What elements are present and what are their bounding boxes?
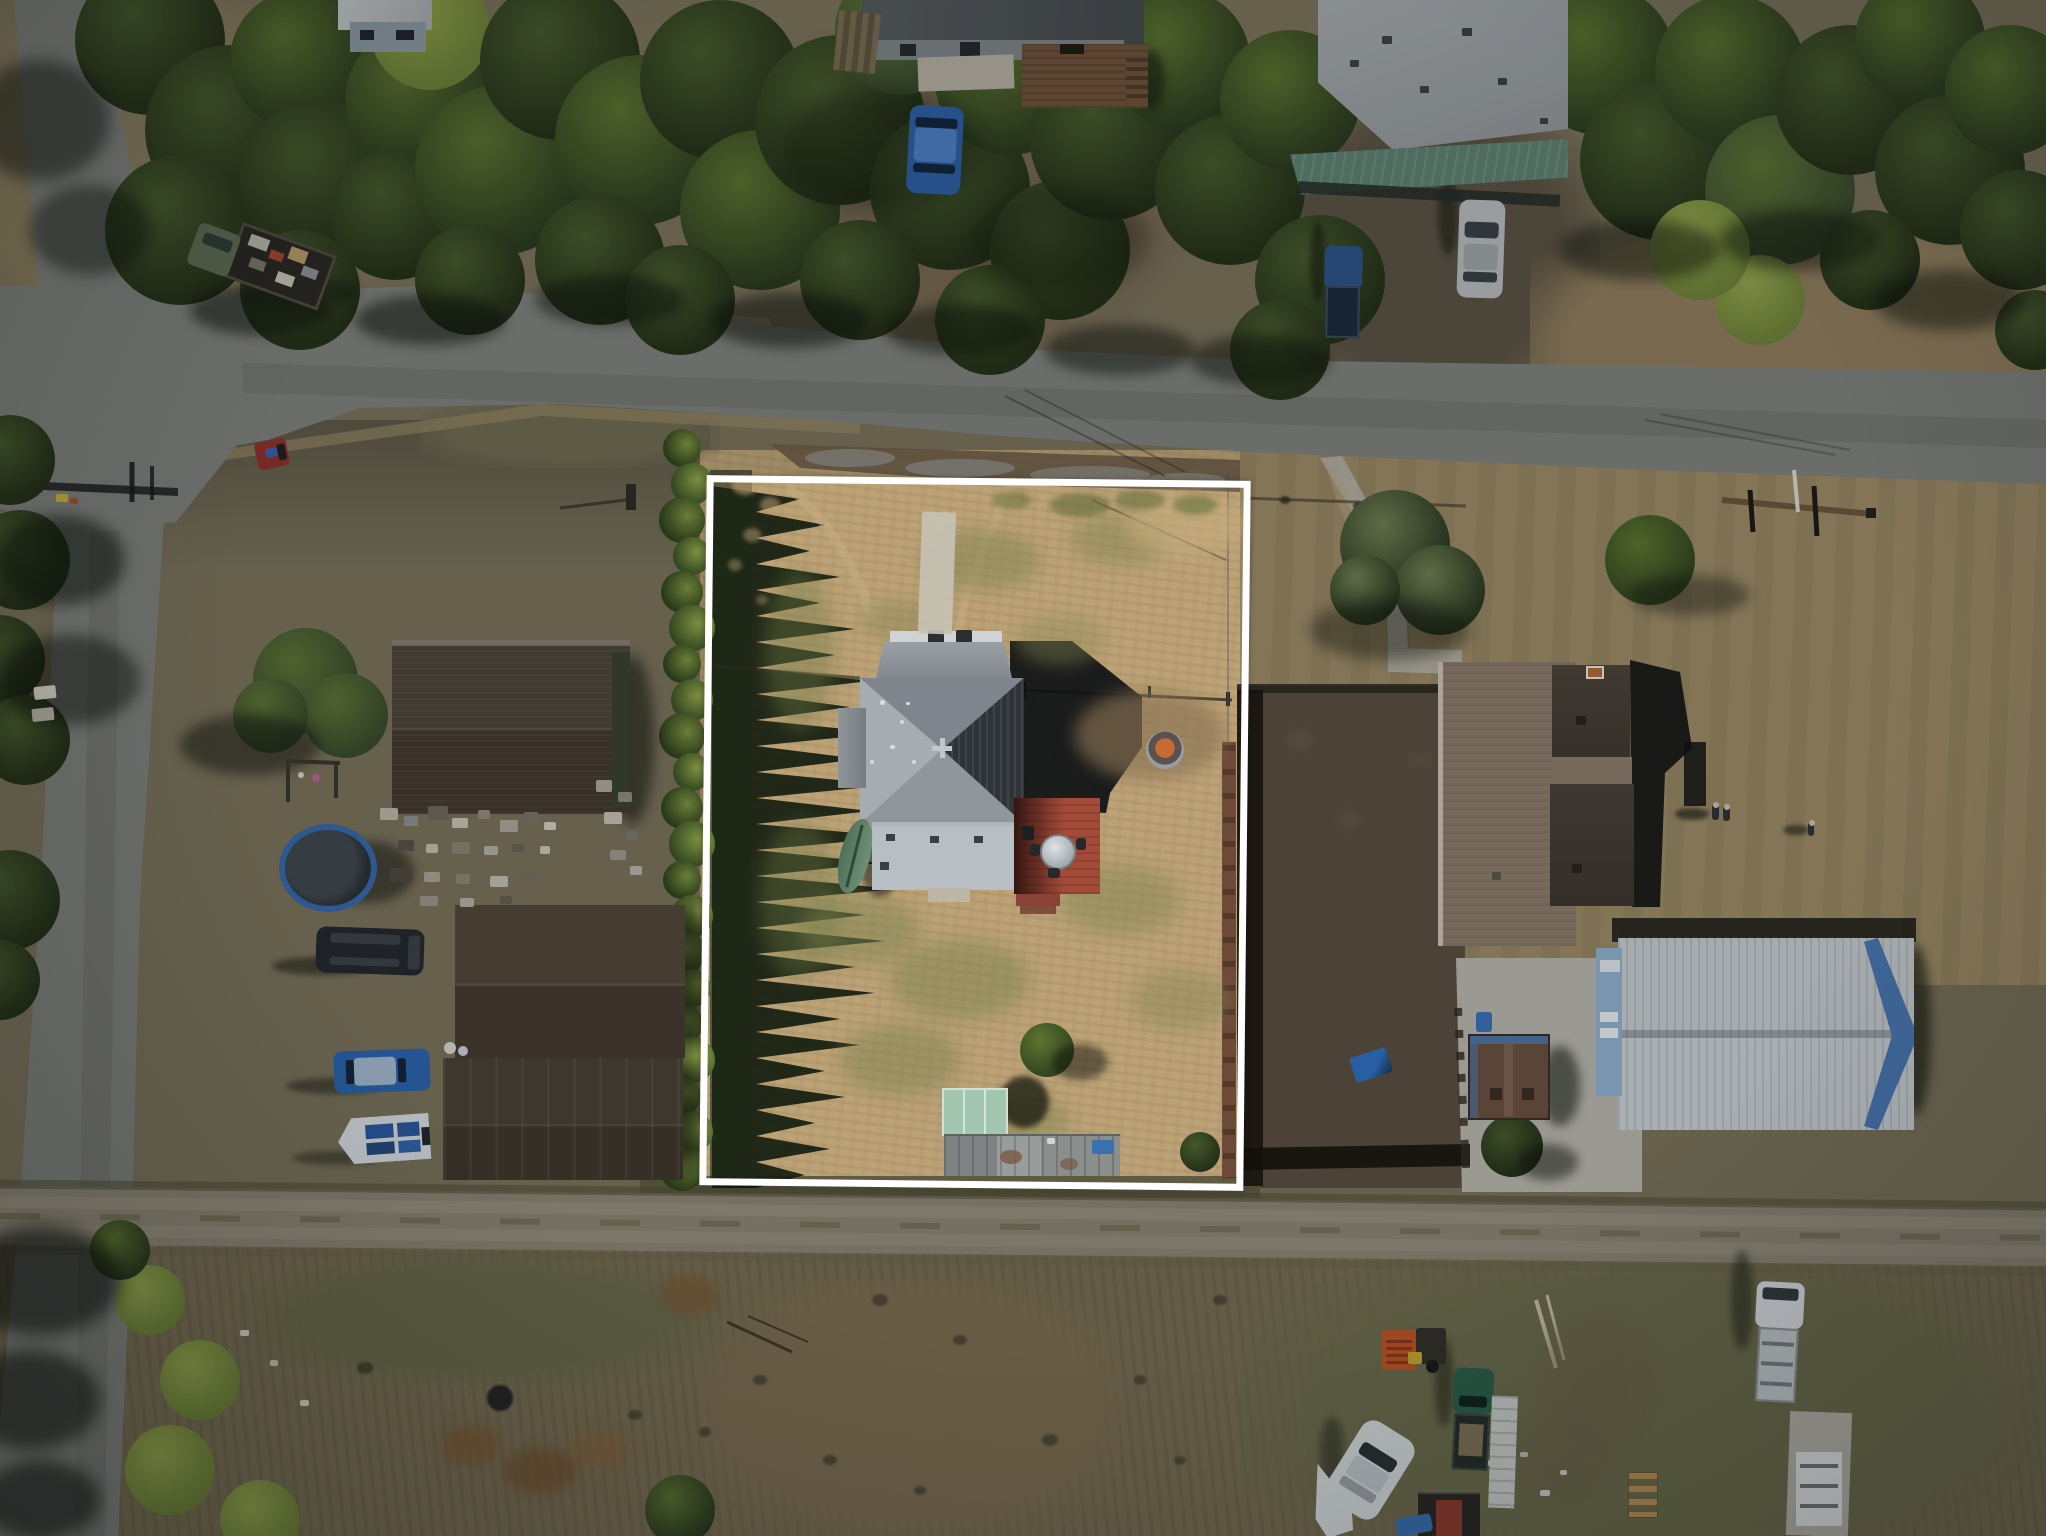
- shadow-blob: [1518, 1144, 1578, 1180]
- person: [1809, 820, 1815, 826]
- pickup-windshield: [1762, 1287, 1799, 1301]
- debris-item: [398, 840, 414, 851]
- hedge-bush: [659, 497, 705, 543]
- hedge-bush: [663, 645, 701, 683]
- debris-yellow: [1408, 1352, 1422, 1364]
- silver-car: [1456, 199, 1505, 299]
- barn-roof: [1618, 938, 1914, 1130]
- shadow-blob: [1190, 335, 1330, 385]
- left-garage-roof: [455, 905, 685, 1058]
- roof-vent: [1492, 872, 1501, 880]
- left-house-eave: [392, 640, 630, 646]
- debris-item: [500, 820, 518, 832]
- shadow-blob: [30, 185, 150, 275]
- shadow-blob: [1783, 825, 1809, 835]
- debris-item: [1540, 118, 1548, 124]
- debris-item: [298, 772, 304, 778]
- barn-window: [1600, 1012, 1618, 1022]
- shadow-blob: [1310, 600, 1470, 660]
- debris-item: [478, 810, 490, 819]
- debris-item: [286, 764, 290, 802]
- shadow-blob: [970, 190, 1150, 290]
- shadow-blob: [1045, 325, 1195, 375]
- left-house-roof: [392, 644, 630, 814]
- car-roof: [354, 1057, 397, 1086]
- shed-blue-tarp: [1470, 1036, 1548, 1044]
- trailer-seam: [1800, 1464, 1838, 1468]
- debris-item: [1520, 1452, 1528, 1457]
- topedge-house-window: [360, 30, 374, 40]
- shed-blue-tarp: [1470, 1036, 1478, 1118]
- ground-patch: [487, 1385, 513, 1411]
- shadow-blob: [0, 635, 140, 725]
- debris-item: [610, 850, 626, 860]
- shed-window: [1490, 1088, 1502, 1100]
- concrete-pad: [917, 54, 1014, 91]
- debris-item: [460, 898, 474, 907]
- debris-item: [500, 896, 512, 904]
- ground-patch: [1280, 496, 1290, 504]
- debris-item: [270, 1360, 278, 1366]
- shadow-blob: [180, 715, 320, 775]
- barn-white-trim: [1600, 960, 1620, 972]
- trailer-seam: [1800, 1484, 1838, 1488]
- debris-item: [1560, 1470, 1567, 1475]
- pole-base: [1866, 508, 1876, 518]
- ground-patch: [1510, 1415, 1610, 1505]
- boat-interior: [397, 1122, 420, 1138]
- pickup-cargo: [1458, 1423, 1484, 1456]
- trampoline: [279, 824, 377, 912]
- debris-item: [312, 774, 320, 782]
- ground-patch: [1408, 752, 1432, 768]
- boat-interior: [365, 1123, 394, 1139]
- debris-item: [596, 780, 612, 792]
- debris-item: [404, 816, 418, 826]
- shed-ridge: [1504, 1038, 1513, 1116]
- debris-item: [452, 818, 468, 828]
- ground-patch: [628, 1410, 642, 1420]
- debris-item: [452, 842, 470, 854]
- tree-canopy: [125, 1425, 215, 1515]
- shadow-blob: [535, 275, 685, 325]
- deck-stairs: [1126, 58, 1148, 102]
- debris-item: [334, 762, 338, 798]
- shadow-blob: [355, 295, 505, 345]
- ground-patch: [1337, 811, 1363, 829]
- ground-patch: [1285, 730, 1315, 750]
- hedge-bush: [659, 713, 705, 759]
- shadow-blob: [1560, 220, 1720, 280]
- car-rear-window: [398, 1058, 407, 1082]
- pickup-bed: [1325, 286, 1360, 339]
- pole-shadow: [1750, 490, 1753, 532]
- topedge-house-window: [396, 30, 414, 40]
- ground-patch: [1042, 1434, 1058, 1446]
- ground-patch: [1174, 1456, 1186, 1465]
- person: [1724, 804, 1730, 810]
- debris-item: [380, 808, 398, 820]
- debris-item: [626, 830, 638, 840]
- ground-patch: [440, 1425, 500, 1465]
- debris-item: [540, 846, 550, 854]
- debris-item: [1382, 36, 1392, 44]
- right-house-tan-gap: [1552, 757, 1632, 784]
- white-panel-trailer: [1488, 1396, 1518, 1509]
- hedge-bush: [663, 861, 701, 899]
- wood-pallet: [1628, 1472, 1658, 1518]
- left-garage2-roof: [443, 1058, 683, 1180]
- trailer-seam: [1800, 1504, 1838, 1508]
- pickup-cab: [1324, 246, 1363, 289]
- debris-item: [70, 498, 78, 504]
- pole-shadow: [1814, 486, 1817, 536]
- fence-line: [1237, 684, 1462, 693]
- right-house-dark-roof-b: [1550, 784, 1634, 906]
- debris-item: [524, 872, 536, 881]
- white-trailer: [1796, 1452, 1842, 1526]
- blue-pickup: [1323, 246, 1363, 339]
- debris-item: [240, 1330, 249, 1336]
- pickup-cab: [1452, 1367, 1494, 1415]
- debris-item: [1462, 28, 1472, 36]
- ground-patch: [570, 1430, 630, 1470]
- shadow-blob: [0, 515, 125, 605]
- debris-item: [630, 866, 642, 875]
- debris-item: [428, 806, 448, 820]
- chimney: [1586, 666, 1604, 679]
- shadow-blob: [1875, 270, 2025, 330]
- shadow-blob: [1731, 1250, 1753, 1350]
- ground-patch: [953, 1335, 967, 1345]
- orange-tractor-debris: [1382, 1326, 1452, 1374]
- blue-car-left: [333, 1048, 430, 1093]
- car-windshield: [1464, 221, 1499, 238]
- top-house-doorway: [1060, 44, 1084, 54]
- tree-canopy: [645, 1475, 715, 1536]
- car-roof: [913, 127, 957, 163]
- debris-item: [300, 1400, 309, 1406]
- shadow-blob: [885, 305, 1035, 355]
- stick: [748, 1316, 808, 1342]
- stick: [727, 1322, 792, 1352]
- boat-interior: [398, 1139, 421, 1153]
- roof-vent: [1576, 716, 1586, 725]
- debris-item: [1498, 78, 1507, 85]
- debris-item: [484, 846, 498, 855]
- roof-vent: [1572, 864, 1582, 873]
- debris-item: [544, 822, 556, 830]
- puddle: [805, 449, 895, 467]
- debris-item: [424, 872, 440, 882]
- ground-patch: [660, 1275, 720, 1315]
- debris-item: [512, 844, 524, 852]
- top-house-window: [900, 44, 916, 56]
- ground-patch: [872, 1294, 888, 1306]
- boat-on-trailer: [336, 1111, 431, 1167]
- ground-patch: [1134, 1375, 1146, 1385]
- utility-pole: [626, 484, 636, 510]
- property-boundary-outline: [699, 475, 1250, 1191]
- boat-motor: [421, 1127, 430, 1146]
- debris-item: [1420, 86, 1429, 93]
- puddle: [905, 459, 1015, 477]
- debris-item: [1540, 1490, 1550, 1496]
- debris-item: [444, 1042, 456, 1054]
- shed-window: [1522, 1088, 1534, 1100]
- shadow-blob: [1630, 575, 1750, 615]
- person: [1713, 802, 1719, 808]
- shadow-blob: [1720, 210, 1880, 270]
- debris-item: [33, 685, 56, 700]
- hedge-bush: [663, 429, 701, 467]
- debris-item: [56, 494, 68, 502]
- aerial-photo: [0, 0, 2046, 1536]
- ground-patch: [823, 1455, 837, 1465]
- debris-item: [524, 812, 538, 822]
- blue-trash-can: [1476, 1012, 1492, 1032]
- debris-item: [31, 707, 54, 722]
- ground-patch: [1213, 1295, 1227, 1305]
- barn-window: [1600, 1028, 1618, 1038]
- dark-suv: [315, 926, 425, 976]
- pickup-windshield: [1459, 1395, 1488, 1407]
- ground-patch: [503, 1448, 578, 1493]
- boat-interior: [366, 1141, 395, 1155]
- red-door: [1436, 1500, 1462, 1536]
- debris-item: [426, 844, 438, 853]
- debris-item: [420, 896, 438, 906]
- debris-item: [490, 876, 508, 887]
- debris-item: [1350, 60, 1359, 67]
- ground-patch: [753, 1375, 767, 1385]
- shadow-blob: [1438, 175, 1458, 255]
- green-pickup: [1449, 1367, 1494, 1473]
- ground-patch: [357, 1362, 373, 1374]
- debris-item: [458, 1046, 468, 1056]
- debris-item: [456, 874, 470, 884]
- car-rear-window: [1463, 271, 1497, 282]
- tractor-wheel: [1426, 1360, 1439, 1373]
- top-house-door: [960, 42, 980, 56]
- fence-shadow: [1243, 1144, 1470, 1170]
- shadow-blob: [1675, 808, 1709, 820]
- white-pickup: [1751, 1281, 1805, 1405]
- pole-shadow: [560, 500, 626, 508]
- wood-fence: [833, 10, 881, 74]
- blue-car-top: [906, 105, 965, 196]
- shadow-blob: [710, 293, 870, 348]
- brown-shed: [1468, 1034, 1550, 1120]
- car-windshield: [346, 1060, 355, 1084]
- suv-hood: [407, 935, 420, 969]
- debris-item: [618, 792, 632, 802]
- ground-patch: [914, 1486, 926, 1495]
- debris-item: [604, 812, 622, 824]
- left-house-green-wall: [612, 652, 630, 808]
- car-roof: [1463, 243, 1498, 270]
- ground-patch: [699, 1427, 711, 1437]
- debris-item: [390, 868, 412, 882]
- tree-canopy: [160, 1340, 240, 1420]
- right-house-shadow: [1684, 742, 1706, 806]
- right-house-shadow: [1630, 660, 1692, 907]
